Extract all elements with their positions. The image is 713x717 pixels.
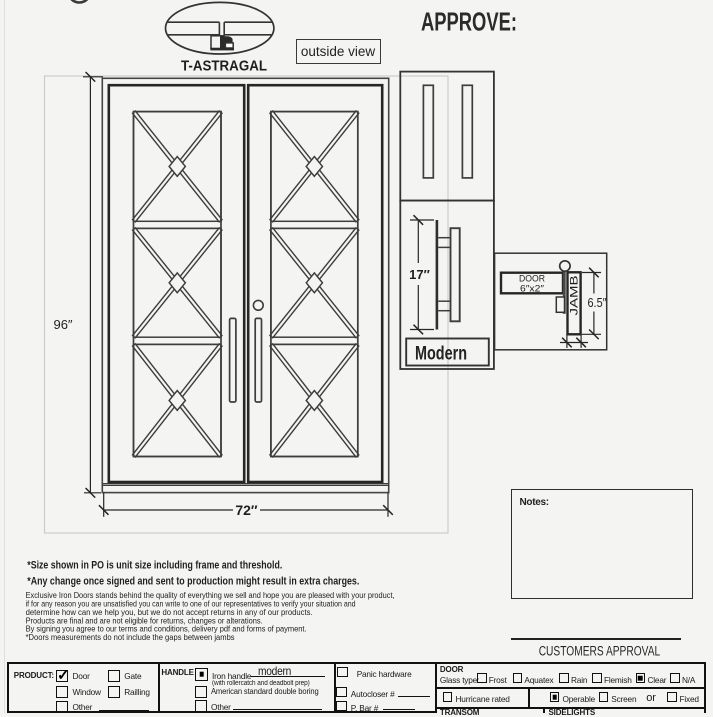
- svg-text:CUSTOMERS APPROVAL: CUSTOMERS APPROVAL: [539, 643, 661, 658]
- svg-text:*Doors measurements do not inc: *Doors measurements do not include the g…: [26, 633, 235, 642]
- svg-text:17″: 17″: [409, 267, 430, 282]
- svg-text:T-ASTRAGAL: T-ASTRAGAL: [181, 57, 267, 74]
- svg-text:96″: 96″: [53, 317, 72, 332]
- svg-text:*Size shown in PO is unit size: *Size shown in PO is unit size including…: [27, 560, 282, 572]
- svg-text:Modern: Modern: [415, 344, 467, 365]
- svg-text:72″: 72″: [235, 502, 258, 518]
- svg-text:6.5″: 6.5″: [588, 295, 607, 310]
- svg-text:6″x2″: 6″x2″: [520, 284, 545, 295]
- svg-text:JAMB: JAMB: [569, 276, 581, 316]
- svg-text:APPROVE:: APPROVE:: [421, 7, 517, 37]
- svg-text:*Any change once signed and se: *Any change once signed and sent to prod…: [27, 576, 359, 588]
